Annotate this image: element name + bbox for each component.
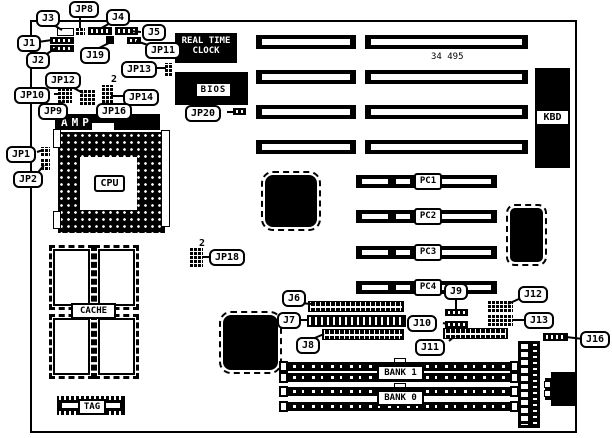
callout-jp11: JP11 [145,42,181,59]
callout-j3: J3 [36,10,60,27]
callout-j19: J19 [80,47,110,64]
callout-jp20: JP20 [185,105,221,122]
callout-j6: J6 [282,290,306,307]
callout-j7: J7 [277,312,301,329]
callout-j12: J12 [518,286,548,303]
callout-jp16: JP16 [96,103,132,120]
callout-j1: J1 [17,35,41,52]
callout-j13: J13 [524,312,554,329]
callout-jp13: JP13 [121,61,157,78]
callout-jp10: JP10 [14,87,50,104]
callout-jp9: JP9 [38,103,68,120]
callout-pointer-lines [0,0,612,438]
callout-j5: J5 [142,24,166,41]
callout-jp1: JP1 [6,146,36,163]
callout-j2: J2 [26,52,50,69]
jp18-pin2-marker: 2 [199,238,205,249]
callout-jp8: JP8 [69,1,99,18]
callout-j10: J10 [407,315,437,332]
callout-j16: J16 [580,331,610,348]
callout-j8: J8 [296,337,320,354]
jp14-pin2-marker: 2 [111,74,117,85]
callout-j4: J4 [106,9,130,26]
motherboard-diagram: 34 495 KBD REAL TIME CLOCK BIOS PC1 PC2 … [0,0,612,438]
callout-jp12: JP12 [45,72,81,89]
callout-jp2: JP2 [13,171,43,188]
callout-j9: J9 [444,283,468,300]
callout-j11: J11 [415,339,445,356]
callout-jp18: JP18 [209,249,245,266]
